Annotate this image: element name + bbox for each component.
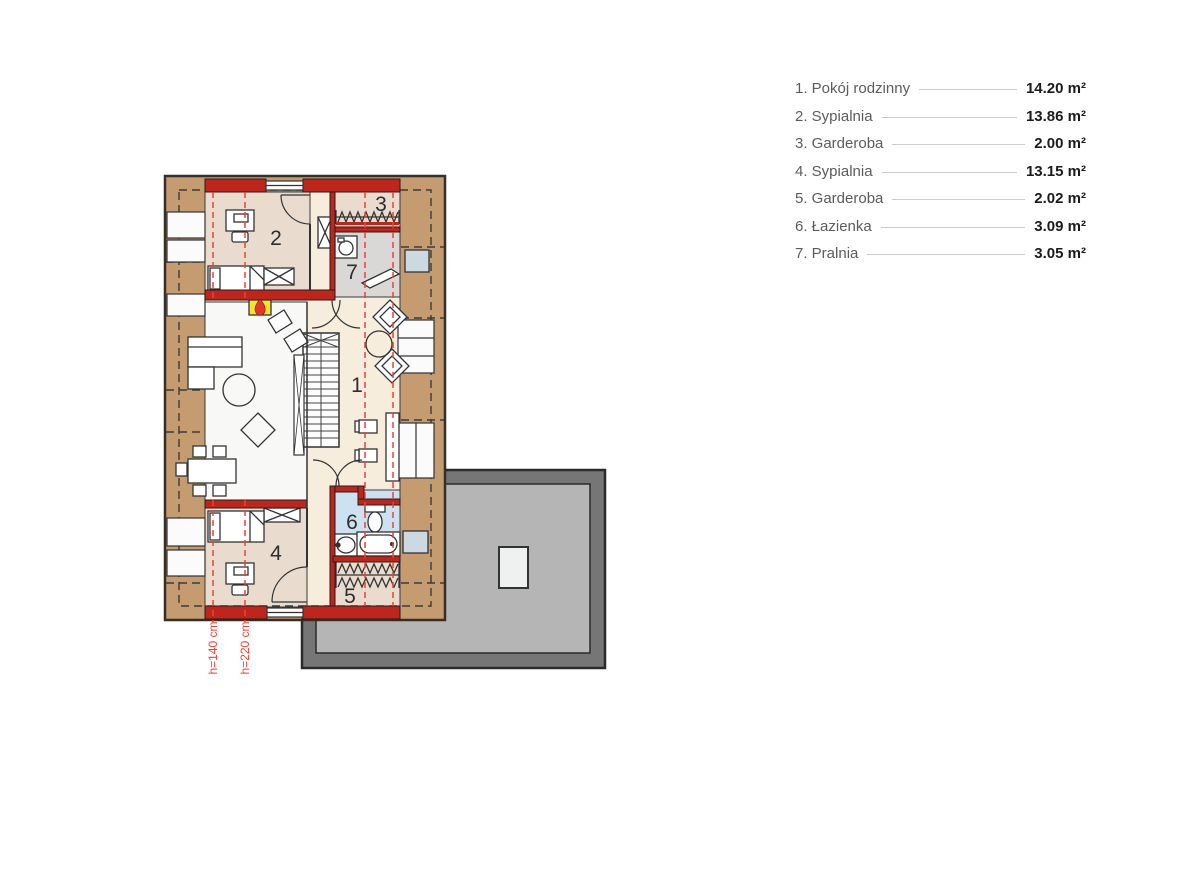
legend-room-name: 7. Pralnia [795,245,858,262]
chimney-fireplace [249,299,271,315]
legend-leader-line [919,89,1017,90]
legend-row: 4. Sypialnia 13.15 m² [795,158,1086,186]
legend-room-area: 13.86 m² [1026,108,1086,125]
legend-row: 5. Garderoba 2.02 m² [795,185,1086,213]
legend-row: 3. Garderoba 2.00 m² [795,130,1086,158]
legend-leader-line [882,117,1017,118]
legend-room-name: 4. Sypialnia [795,163,873,180]
sofa [188,337,242,367]
legend-room-name: 3. Garderoba [795,135,883,152]
toilet-bowl [368,512,382,532]
legend-room-name: 1. Pokój rodzinny [795,80,910,97]
legend-room-name: 2. Sypialnia [795,108,873,125]
legend-room-area: 13.15 m² [1026,163,1086,180]
roof-window-icon [405,250,429,272]
dining-table [188,459,236,483]
legend-leader-line [892,199,1025,200]
legend-leader-line [881,227,1026,228]
height-label-140: h=140 cm [206,621,220,674]
room-label-5: 5 [344,585,356,608]
roof-window-icon [403,531,428,553]
floor-plan-page: 1 2 3 4 5 6 7 h=140 cm h=220 cm 1. Pokój… [0,0,1198,889]
legend-room-area: 2.02 m² [1034,190,1086,207]
floor-room5 [333,562,400,607]
room-label-1: 1 [351,374,363,397]
legend-room-area: 2.00 m² [1034,135,1086,152]
legend-leader-line [882,172,1017,173]
room-label-2: 2 [270,227,282,250]
chair [359,420,377,433]
height-label-220: h=220 cm [238,621,252,674]
legend-room-name: 5. Garderoba [795,190,883,207]
height-annotations: h=140 cm h=220 cm [206,621,252,674]
legend-room-area: 14.20 m² [1026,80,1086,97]
room-label-6: 6 [346,511,358,534]
room-label-3: 3 [375,193,387,216]
legend-row: 6. Łazienka 3.09 m² [795,213,1086,241]
legend-room-area: 3.05 m² [1034,245,1086,262]
room-label-4: 4 [270,542,282,565]
legend-row: 1. Pokój rodzinny 14.20 m² [795,75,1086,103]
legend-leader-line [867,254,1025,255]
room-label-7: 7 [346,261,358,284]
legend-row: 2. Sypialnia 13.86 m² [795,103,1086,131]
legend-room-name: 6. Łazienka [795,218,872,235]
legend-row: 7. Pralnia 3.05 m² [795,240,1086,268]
skylight [499,547,528,588]
legend-room-area: 3.09 m² [1034,218,1086,235]
legend-leader-line [892,144,1025,145]
room-legend: 1. Pokój rodzinny 14.20 m² 2. Sypialnia … [795,75,1086,268]
